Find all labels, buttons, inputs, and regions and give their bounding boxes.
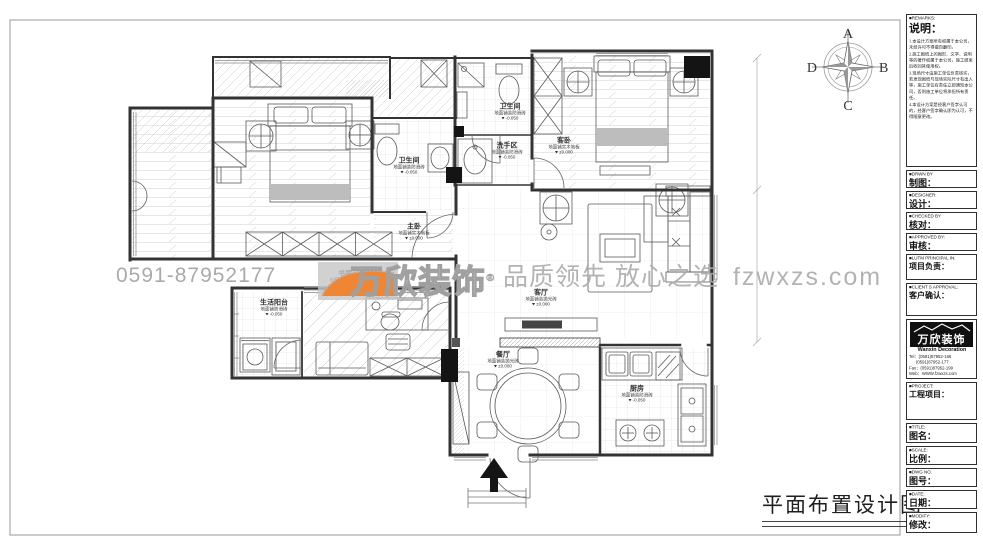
remarks-section: ■REMARKS: 说明： 1.本设计方案所有权属于本公司，未经许可不得擅自翻印… <box>906 14 977 167</box>
field-project: ■PROJECT: 工程项目： <box>906 382 977 420</box>
field-approved-by: ■APPROVED BY: 审核： <box>906 233 977 251</box>
entry-arrow-icon <box>480 458 508 492</box>
drawing-sheet: A B C D 主卧 地面铺实木地板 ±0.000 卫生间 地面铺装防滑砖 -0… <box>0 0 983 549</box>
company-name-cn: 万欣装饰 <box>910 334 973 346</box>
field-client-approval: ■CLIENT S APPROVAL: 客户确认： <box>906 283 977 316</box>
field-modify: ■MODIFY: 修改： <box>906 512 977 533</box>
elevation-marker <box>266 313 269 316</box>
remarks-text: 1.本设计方案所有权属于本公司，未经许可不得擅自翻印。 2.施工图纸上的图形、文… <box>909 38 974 119</box>
remarks-header: ■REMARKS: <box>909 16 974 19</box>
elevation-marker <box>401 171 404 174</box>
compass-letter-bottom: C <box>843 99 852 114</box>
drawing-title: 平面布置设计图 <box>762 489 923 527</box>
field-project-principal: ■LUTM PRINCIPAL IN: 项目负责： <box>906 254 977 280</box>
field-drawn-by: ■DRWN BY 制图： <box>906 170 977 188</box>
remarks-label: 说明： <box>909 23 974 36</box>
floor-plan-drawing: A B C D <box>0 0 983 549</box>
compass-letter-right: B <box>879 61 888 76</box>
field-date: ■DATE: 日期： <box>906 490 977 509</box>
dimension-line <box>753 54 761 346</box>
elevation-marker <box>494 365 497 368</box>
title-block: ■REMARKS: 说明： 1.本设计方案所有权属于本公司，未经许可不得擅自翻印… <box>906 14 977 536</box>
company-logo: 万欣装饰 <box>910 322 973 347</box>
elevation-marker <box>336 284 339 287</box>
elevation-marker <box>405 237 408 240</box>
elevation-marker <box>532 303 535 306</box>
company-name-en: Wanxin Decoration <box>909 347 974 351</box>
field-checked-by: ■CHECKED BY 核对： <box>906 212 977 230</box>
elevation-marker <box>629 399 632 402</box>
tv-feature-wall <box>500 338 600 347</box>
elevation-marker <box>502 117 505 120</box>
field-dwg-no: ■DWG NO. 图号： <box>906 468 977 487</box>
field-scale: ■SCALE: 比例： <box>906 446 977 465</box>
company-section: 万欣装饰 Wanxin Decoration Tel：(0591)87952-1… <box>906 319 977 379</box>
compass-letter-left: D <box>807 61 817 76</box>
field-designer: ■DESIGNER: 设计： <box>906 191 977 209</box>
elevation-mar­ker <box>555 151 558 154</box>
compass-rose: A B C D <box>807 27 888 114</box>
field-title: ■TITLE: 图名： <box>906 423 977 443</box>
elevation-marker <box>499 156 502 159</box>
company-contact: Tel：(0591)87952-166 (0591)87952-177 Fax：… <box>909 354 974 377</box>
compass-letter-top: A <box>843 27 854 42</box>
wall-stub <box>452 338 460 347</box>
